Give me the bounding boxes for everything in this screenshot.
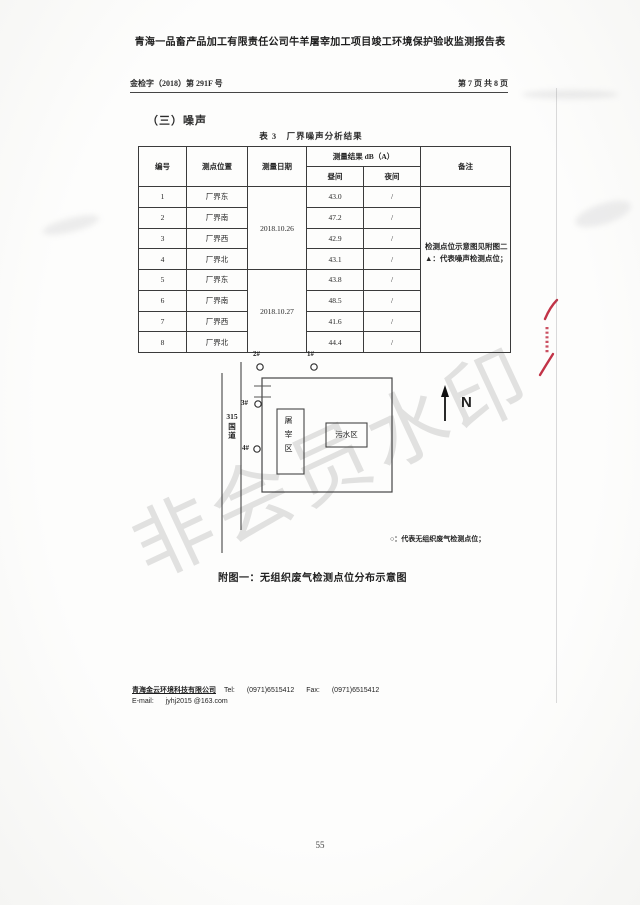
date-cell: 2018.10.27 xyxy=(248,270,307,353)
gas-point-legend: ○：代表无组织废气检测点位； xyxy=(390,534,485,544)
north-arrow-icon xyxy=(441,385,449,421)
cell-night: / xyxy=(364,249,421,270)
cell-location: 厂界东 xyxy=(187,187,248,208)
point-label-3: 3# xyxy=(241,399,248,407)
red-seal-fragment xyxy=(533,292,563,384)
remark-line: ▲：代表噪声检测点位； xyxy=(425,253,508,265)
scanned-report-page: 青海一品畜产品加工有限责任公司牛羊屠宰加工项目竣工环境保护验收监测报告表 金检字… xyxy=(0,0,640,905)
cell-day: 42.9 xyxy=(307,228,364,249)
north-label: N xyxy=(461,394,472,411)
point-label-4: 4# xyxy=(242,444,249,452)
noise-table: 编号 测点位置 测量日期 测量结果 dB（A） 备注 昼间 夜间 1 厂界东 2… xyxy=(138,146,511,353)
cell-day: 47.2 xyxy=(307,207,364,228)
cell-id: 4 xyxy=(139,249,187,270)
cell-id: 7 xyxy=(139,311,187,332)
road-label: 315 国 道 xyxy=(224,412,240,441)
col-header-night: 夜间 xyxy=(364,167,421,187)
cell-night: / xyxy=(364,290,421,311)
cell-location: 厂界北 xyxy=(187,249,248,270)
footer-email: jyhj2015 @163.com xyxy=(166,698,228,705)
site-diagram xyxy=(180,345,520,560)
cell-day: 41.6 xyxy=(307,311,364,332)
point-label-2: 2# xyxy=(253,350,260,358)
cell-location: 厂界南 xyxy=(187,207,248,228)
col-header-id: 编号 xyxy=(139,147,187,187)
scan-smudge xyxy=(41,211,101,239)
monitoring-point-3 xyxy=(255,401,261,407)
cell-id: 1 xyxy=(139,187,187,208)
monitoring-point-4 xyxy=(254,446,260,452)
col-header-remark: 备注 xyxy=(421,147,511,187)
col-header-location: 测点位置 xyxy=(187,147,248,187)
footer-line: 青海金云环境科技有限公司 Tel: (0971)6515412 Fax: (09… xyxy=(132,685,379,695)
cell-location: 厂界西 xyxy=(187,311,248,332)
cell-id: 6 xyxy=(139,290,187,311)
footer-company: 青海金云环境科技有限公司 xyxy=(132,687,216,694)
cell-id: 3 xyxy=(139,228,187,249)
cell-night: / xyxy=(364,270,421,291)
remark-line: 检测点位示意图见附图二 xyxy=(425,241,508,253)
table-header-row: 编号 测点位置 测量日期 测量结果 dB（A） 备注 xyxy=(139,147,511,167)
footer-email-label: E-mail: xyxy=(132,698,154,705)
slaughter-area-label: 屠宰区 xyxy=(283,416,294,458)
monitoring-point-2 xyxy=(257,364,263,370)
col-header-result-group: 测量结果 dB（A） xyxy=(307,147,421,167)
page-indicator: 第 7 页 共 8 页 xyxy=(458,78,508,89)
col-header-day: 昼间 xyxy=(307,167,364,187)
footer-tel-label: Tel: xyxy=(224,687,235,694)
sewage-area-label: 污水区 xyxy=(326,429,367,440)
table-caption: 表 3 厂界噪声分析结果 xyxy=(138,130,484,142)
cell-day: 43.8 xyxy=(307,270,364,291)
date-cell: 2018.10.26 xyxy=(248,187,307,270)
table-row: 1 厂界东 2018.10.26 43.0 / 检测点位示意图见附图二 ▲：代表… xyxy=(139,187,511,208)
figure-caption: 附图一：无组织废气检测点位分布示意图 xyxy=(218,569,407,584)
scan-smudge xyxy=(572,196,633,233)
scan-smudge xyxy=(522,90,618,99)
point-label-1: 1# xyxy=(307,350,314,358)
cell-id: 5 xyxy=(139,270,187,291)
monitoring-point-1 xyxy=(311,364,317,370)
cell-id: 2 xyxy=(139,207,187,228)
cell-night: / xyxy=(364,187,421,208)
cell-location: 厂界西 xyxy=(187,228,248,249)
cell-day: 43.0 xyxy=(307,187,364,208)
footer-fax-label: Fax: xyxy=(306,687,320,694)
cell-night: / xyxy=(364,228,421,249)
footer-line: E-mail: jyhj2015 @163.com xyxy=(132,698,379,705)
cell-day: 48.5 xyxy=(307,290,364,311)
page-edge-line xyxy=(556,88,557,703)
col-header-date: 测量日期 xyxy=(248,147,307,187)
footer: 青海金云环境科技有限公司 Tel: (0971)6515412 Fax: (09… xyxy=(132,685,379,705)
cell-night: / xyxy=(364,311,421,332)
section-heading: （三）噪声 xyxy=(147,112,207,128)
cell-night: / xyxy=(364,207,421,228)
remark-cell: 检测点位示意图见附图二 ▲：代表噪声检测点位； xyxy=(421,187,511,353)
cell-day: 43.1 xyxy=(307,249,364,270)
cell-location: 厂界南 xyxy=(187,290,248,311)
cell-location: 厂界东 xyxy=(187,270,248,291)
footer-tel: (0971)6515412 xyxy=(247,687,295,694)
document-header-bar: 金检字（2018）第 291F 号 第 7 页 共 8 页 xyxy=(130,78,508,93)
page-title: 青海一品畜产品加工有限责任公司牛羊屠宰加工项目竣工环境保护验收监测报告表 xyxy=(0,33,640,48)
page-number: 55 xyxy=(0,840,640,850)
doc-number: 金检字（2018）第 291F 号 xyxy=(130,78,223,89)
footer-fax: (0971)6515412 xyxy=(332,687,380,694)
